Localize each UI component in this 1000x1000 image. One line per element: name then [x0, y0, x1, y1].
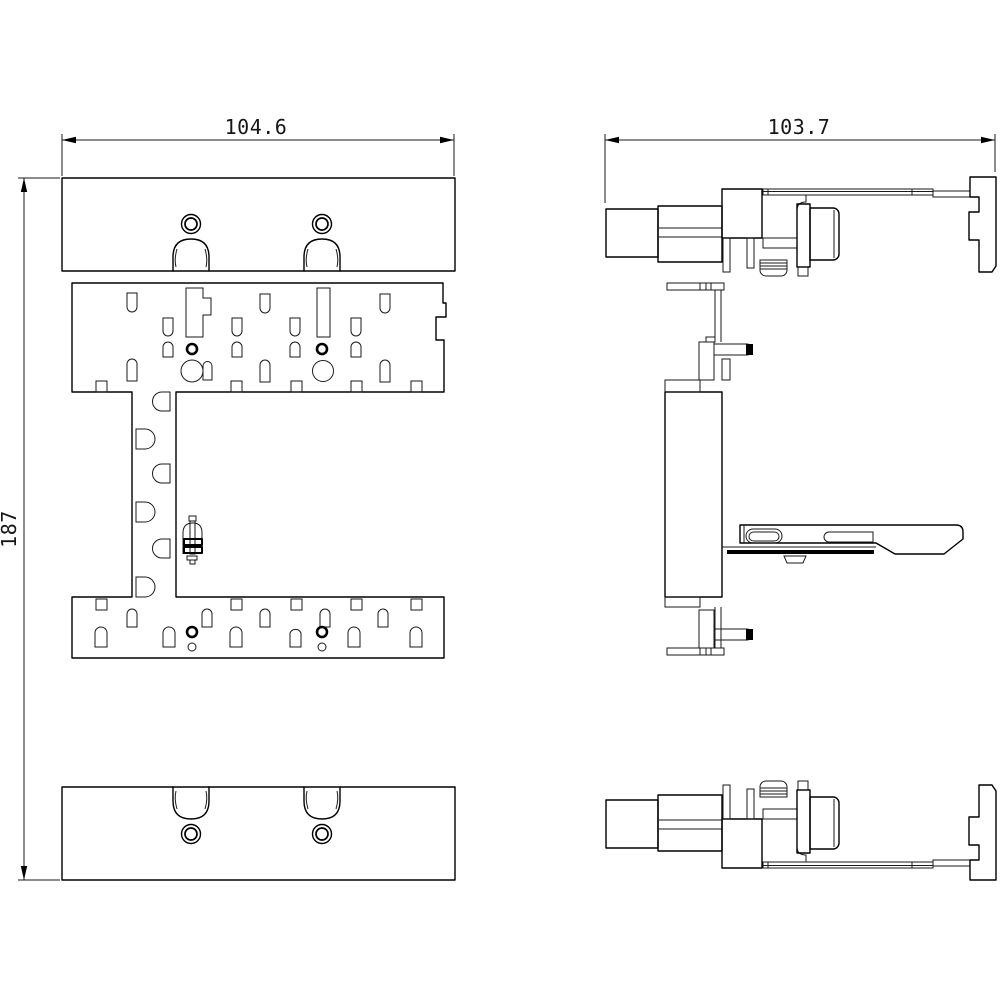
- arrow-icon: [981, 137, 995, 143]
- arrow-icon: [440, 137, 454, 143]
- cad-drawing-canvas: 104.6 103.7 187: [0, 0, 1000, 1000]
- rail-bar: [727, 550, 874, 554]
- center-plate: [72, 283, 446, 658]
- pin: [714, 629, 748, 640]
- hook-profile: [969, 177, 996, 272]
- side-view: [606, 177, 996, 880]
- large-hole: [313, 361, 334, 382]
- dim-front-width-label: 104.6: [225, 115, 288, 139]
- side-profile-bottom: [606, 781, 996, 880]
- small-hole: [188, 643, 196, 651]
- rect-cutout: [186, 288, 211, 337]
- u-notch: [173, 239, 209, 271]
- small-hole: [318, 643, 326, 651]
- side-profile-top: [606, 177, 996, 276]
- rect-cutout: [317, 288, 330, 337]
- dim-height-label: 187: [0, 510, 21, 548]
- arrow-icon: [21, 866, 27, 880]
- dimensions: 104.6 103.7 187: [0, 115, 995, 880]
- arrow-icon: [21, 178, 27, 192]
- arrow-icon: [605, 137, 619, 143]
- front-view: [62, 178, 455, 880]
- dim-side-width: 103.7: [605, 115, 995, 203]
- mounting-plate-top: [62, 178, 455, 271]
- connector-body: [810, 208, 839, 260]
- cad-drawing: 104.6 103.7 187: [0, 0, 1000, 1000]
- din-latch-detail: [183, 516, 202, 564]
- pilot-hole: [317, 627, 327, 637]
- dim-front-width: 104.6: [62, 115, 454, 176]
- pilot-hole: [317, 344, 327, 354]
- dim-side-width-label: 103.7: [768, 115, 831, 139]
- arrow-icon: [62, 137, 76, 143]
- dim-height: 187: [0, 178, 60, 880]
- large-hole: [181, 360, 203, 382]
- u-notch: [304, 239, 340, 271]
- pilot-hole: [187, 344, 197, 354]
- pilot-hole: [187, 627, 197, 637]
- mounting-plate-bottom: [62, 787, 455, 880]
- side-center-plate: [665, 283, 753, 655]
- rail-clip: [722, 525, 963, 563]
- pin: [714, 344, 748, 355]
